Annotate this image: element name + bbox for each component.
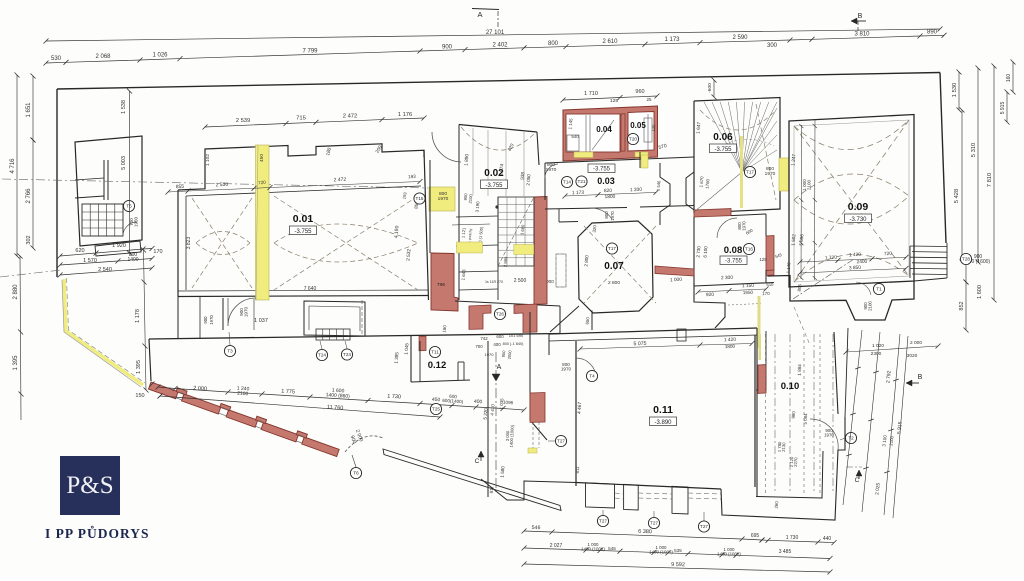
svg-text:1 020: 1 020 [872, 343, 884, 349]
svg-text:1 600: 1 600 [977, 285, 983, 299]
svg-text:-3.755: -3.755 [714, 147, 732, 153]
svg-text:125: 125 [610, 98, 618, 104]
svg-text:1970: 1970 [209, 315, 214, 325]
svg-text:1 7802130: 1 7802130 [777, 441, 787, 453]
svg-text:302: 302 [26, 235, 32, 244]
svg-text:1800: 1800 [605, 194, 616, 200]
svg-text:1 395: 1 395 [136, 360, 142, 374]
svg-text:T14: T14 [563, 180, 571, 185]
svg-text:C: C [475, 458, 480, 465]
svg-text:715: 715 [296, 116, 306, 122]
svg-text:2 610: 2 610 [602, 39, 618, 45]
svg-text:900: 900 [203, 316, 208, 324]
svg-text:2 050: 2 050 [526, 173, 532, 185]
svg-text:P&S: P&S [66, 472, 113, 499]
svg-text:170: 170 [153, 249, 162, 255]
svg-text:800: 800 [604, 211, 609, 219]
svg-text:T1: T1 [876, 287, 882, 292]
svg-text:4 190: 4 190 [393, 225, 400, 238]
svg-text:1 720: 1 720 [825, 255, 838, 262]
svg-text:5 003: 5 003 [121, 156, 127, 170]
svg-text:0.08: 0.08 [724, 245, 743, 256]
svg-text:1 643: 1 643 [461, 269, 467, 281]
svg-text:T11: T11 [431, 350, 439, 355]
svg-text:1 730: 1 730 [786, 535, 799, 541]
svg-text:0.04: 0.04 [596, 125, 612, 134]
svg-text:2000: 2000 [507, 349, 513, 359]
svg-text:5 428: 5 428 [954, 189, 960, 204]
svg-text:800: 800 [548, 41, 559, 47]
svg-text:A: A [477, 10, 482, 19]
svg-text:160: 160 [1006, 74, 1012, 83]
svg-text:2400: 2400 [856, 259, 867, 266]
svg-text:T17: T17 [746, 170, 754, 175]
svg-text:890: 890 [927, 30, 938, 36]
svg-text:2 068: 2 068 [95, 54, 111, 60]
svg-text:920: 920 [706, 292, 715, 298]
svg-text:938: 938 [520, 171, 526, 180]
svg-text:300: 300 [767, 43, 778, 49]
svg-text:610: 610 [766, 282, 774, 287]
svg-text:3020: 3020 [907, 353, 918, 359]
svg-text:2 402: 2 402 [492, 43, 508, 49]
svg-text:1800: 1800 [725, 344, 736, 349]
svg-text:900: 900 [501, 350, 507, 358]
svg-text:3 810: 3 810 [854, 31, 870, 37]
svg-text:720: 720 [258, 180, 266, 185]
svg-text:T24: T24 [318, 353, 326, 358]
svg-text:2 539: 2 539 [236, 118, 251, 124]
svg-text:2 530: 2 530 [216, 182, 229, 189]
svg-text:450: 450 [259, 154, 265, 162]
svg-text:1 247: 1 247 [790, 153, 797, 166]
svg-text:1 200: 1 200 [630, 187, 643, 193]
svg-text:1 145: 1 145 [568, 118, 574, 130]
svg-text:695: 695 [751, 533, 760, 539]
svg-text:2 027: 2 027 [550, 543, 563, 549]
svg-text:0.06: 0.06 [713, 132, 733, 143]
svg-text:720: 720 [884, 251, 893, 257]
svg-text:650: 650 [585, 316, 591, 324]
svg-text:8001400: 8001400 [127, 252, 138, 263]
svg-text:1 395: 1 395 [13, 355, 19, 371]
svg-text:2 472: 2 472 [343, 114, 358, 120]
svg-text:540: 540 [571, 134, 579, 139]
svg-text:3 485: 3 485 [779, 549, 792, 555]
svg-text:1 045: 1 045 [404, 342, 410, 354]
svg-text:-3.755: -3.755 [593, 167, 611, 173]
svg-text:1 420: 1 420 [849, 252, 862, 259]
svg-text:260: 260 [774, 501, 779, 509]
svg-text:1 2402100: 1 2402100 [236, 386, 249, 398]
svg-text:546: 546 [532, 525, 541, 531]
svg-text:2 1202270: 2 1202270 [789, 456, 799, 468]
svg-text:852: 852 [959, 301, 965, 310]
svg-text:1970: 1970 [610, 211, 615, 221]
svg-text:700: 700 [475, 344, 483, 349]
svg-text:530: 530 [51, 56, 62, 62]
svg-text:1 775: 1 775 [281, 389, 295, 396]
svg-text:1760: 1760 [705, 178, 711, 189]
svg-text:2 000: 2 000 [910, 340, 922, 346]
svg-text:1 000: 1 000 [670, 277, 683, 284]
svg-text:1 670: 1 670 [699, 176, 705, 188]
svg-text:5 310: 5 310 [971, 143, 977, 158]
svg-text:3 680: 3 680 [520, 224, 526, 236]
svg-text:6 100: 6 100 [703, 245, 709, 257]
svg-text:1970: 1970 [485, 352, 495, 357]
svg-text:535: 535 [674, 548, 682, 553]
svg-text:5 915: 5 915 [1000, 102, 1006, 115]
svg-text:806: 806 [797, 283, 803, 291]
svg-text:2 000: 2 000 [193, 386, 207, 393]
svg-text:T25: T25 [432, 407, 440, 412]
svg-text:1 920: 1 920 [112, 243, 126, 249]
svg-text:1 890: 1 890 [463, 153, 470, 166]
svg-text:5 696: 5 696 [799, 233, 805, 245]
svg-text:T24: T24 [343, 352, 351, 357]
svg-text:180: 180 [442, 324, 448, 332]
svg-text:4 410: 4 410 [490, 403, 496, 415]
svg-text:T27: T27 [557, 439, 565, 444]
svg-text:5 220: 5 220 [483, 407, 489, 419]
svg-text:T27: T27 [599, 519, 607, 524]
svg-text:T20: T20 [629, 137, 637, 142]
svg-text:-600: -600 [707, 83, 713, 93]
svg-text:193: 193 [408, 174, 416, 179]
svg-text:125: 125 [759, 257, 767, 262]
svg-text:T21: T21 [578, 179, 586, 184]
svg-text:1 530: 1 530 [952, 83, 958, 98]
svg-text:A: A [497, 364, 502, 371]
svg-text:3 823: 3 823 [186, 237, 192, 250]
svg-text:T15: T15 [416, 196, 424, 201]
svg-text:2 532: 2 532 [405, 248, 412, 261]
svg-text:-3.890: -3.890 [654, 420, 672, 426]
svg-text:742: 742 [480, 336, 488, 341]
svg-text:-3.755: -3.755 [485, 183, 503, 189]
svg-text:400: 400 [474, 399, 483, 406]
svg-text:7 810: 7 810 [987, 173, 993, 188]
svg-text:1 730: 1 730 [387, 394, 401, 401]
svg-text:T6: T6 [353, 471, 359, 476]
svg-text:1 0002100: 1 0002100 [802, 179, 812, 191]
svg-text:T96: T96 [437, 282, 445, 287]
svg-text:125: 125 [651, 124, 657, 132]
svg-text:2 800: 2 800 [608, 280, 620, 286]
svg-text:T2: T2 [848, 436, 854, 441]
svg-text:1 026: 1 026 [152, 53, 168, 59]
svg-text:1 884: 1 884 [797, 364, 803, 376]
svg-text:1 150: 1 150 [742, 283, 755, 289]
svg-text:0.03: 0.03 [597, 176, 615, 186]
svg-text:1 580: 1 580 [500, 465, 506, 477]
svg-text:I PP PŮDORYS: I PP PŮDORYS [45, 526, 150, 541]
svg-text:1 173: 1 173 [572, 190, 585, 196]
svg-text:1 176: 1 176 [398, 112, 413, 118]
svg-text:T4: T4 [589, 374, 595, 379]
svg-text:1 974: 1 974 [498, 163, 505, 176]
svg-text:1 102: 1 102 [205, 154, 211, 166]
svg-text:980: 980 [791, 411, 796, 419]
svg-text:B: B [918, 374, 923, 381]
svg-text:5 084: 5 084 [803, 413, 809, 425]
svg-text:320: 320 [592, 224, 598, 232]
svg-text:2 300: 2 300 [721, 275, 734, 281]
svg-text:1 651: 1 651 [26, 102, 32, 118]
svg-text:2 590: 2 590 [732, 35, 748, 41]
svg-text:1096: 1096 [503, 400, 514, 406]
svg-text:7 640: 7 640 [304, 286, 317, 292]
svg-text:1 570: 1 570 [83, 258, 97, 264]
svg-text:855: 855 [176, 184, 185, 190]
svg-text:1 546: 1 546 [656, 180, 662, 192]
svg-text:450: 450 [432, 397, 441, 404]
svg-text:2 500: 2 500 [514, 278, 527, 284]
svg-text:2300: 2300 [871, 351, 882, 357]
svg-text:2 766: 2 766 [26, 188, 32, 204]
svg-text:600: 600 [496, 334, 504, 339]
svg-text:150: 150 [135, 393, 144, 399]
svg-text:800 (-1 840): 800 (-1 840) [503, 342, 524, 346]
svg-text:5 075: 5 075 [633, 341, 646, 347]
svg-text:960: 960 [635, 89, 644, 95]
svg-text:170: 170 [762, 291, 770, 296]
svg-text:545: 545 [608, 546, 616, 551]
svg-text:1 140: 1 140 [786, 262, 792, 274]
svg-text:T16: T16 [745, 247, 753, 252]
svg-text:0.01: 0.01 [293, 213, 314, 225]
svg-text:1 420: 1 420 [724, 337, 737, 343]
svg-text:1 121: 1 121 [461, 227, 467, 239]
svg-text:1 035: 1 035 [499, 398, 505, 410]
svg-text:1 647: 1 647 [695, 121, 702, 134]
svg-text:2 472: 2 472 [334, 177, 347, 184]
svg-text:0.09: 0.09 [848, 201, 869, 213]
svg-text:T17: T17 [608, 246, 616, 251]
svg-text:1 710: 1 710 [584, 91, 598, 97]
svg-text:T26: T26 [496, 312, 504, 317]
svg-text:0.07: 0.07 [604, 261, 624, 272]
svg-text:4 716: 4 716 [10, 158, 16, 174]
svg-text:820: 820 [604, 188, 613, 194]
svg-text:T3: T3 [227, 349, 233, 354]
svg-text:1950: 1950 [743, 290, 754, 295]
svg-text:620: 620 [75, 248, 84, 254]
svg-text:1 502: 1 502 [791, 233, 797, 245]
svg-text:3 850: 3 850 [849, 265, 862, 272]
svg-text:9 592: 9 592 [671, 562, 685, 568]
svg-text:1s 11R 270: 1s 11R 270 [485, 280, 503, 284]
svg-text:1 385: 1 385 [394, 351, 400, 363]
svg-text:T28: T28 [962, 257, 970, 262]
svg-text:-3.755: -3.755 [725, 259, 743, 265]
svg-text:440: 440 [823, 536, 832, 542]
svg-text:0.11: 0.11 [653, 404, 673, 416]
svg-text:2 880: 2 880 [13, 284, 19, 300]
svg-text:1 037: 1 037 [254, 318, 268, 324]
svg-text:2100: 2100 [468, 193, 474, 203]
svg-text:2 800: 2 800 [584, 254, 590, 266]
svg-text:0.05: 0.05 [630, 121, 646, 130]
svg-text:7 799: 7 799 [302, 49, 318, 55]
svg-text:1 538: 1 538 [121, 100, 127, 114]
svg-text:4 467: 4 467 [577, 401, 584, 414]
svg-text:-3.755: -3.755 [294, 229, 312, 235]
svg-text:11 760: 11 760 [327, 404, 344, 411]
svg-text:811: 811 [575, 466, 580, 474]
svg-text:6 380: 6 380 [638, 529, 652, 535]
svg-text:27 101: 27 101 [486, 30, 505, 36]
svg-text:-3.730: -3.730 [849, 217, 867, 223]
svg-text:3 190: 3 190 [475, 201, 481, 213]
svg-text:0.12: 0.12 [428, 360, 447, 371]
svg-text:T27: T27 [650, 521, 658, 526]
svg-text:2 540: 2 540 [98, 267, 112, 273]
svg-text:2 730: 2 730 [696, 245, 702, 257]
svg-text:2 980: 2 980 [503, 256, 509, 268]
svg-text:B: B [858, 13, 863, 20]
svg-text:900: 900 [442, 45, 453, 51]
svg-text:25: 25 [646, 97, 652, 102]
svg-text:1 173: 1 173 [664, 37, 680, 43]
svg-text:101 690: 101 690 [509, 333, 524, 338]
svg-text:T27: T27 [700, 524, 708, 529]
svg-text:400: 400 [493, 342, 501, 347]
svg-text:0.10: 0.10 [781, 381, 800, 392]
svg-text:1 178: 1 178 [135, 309, 141, 323]
